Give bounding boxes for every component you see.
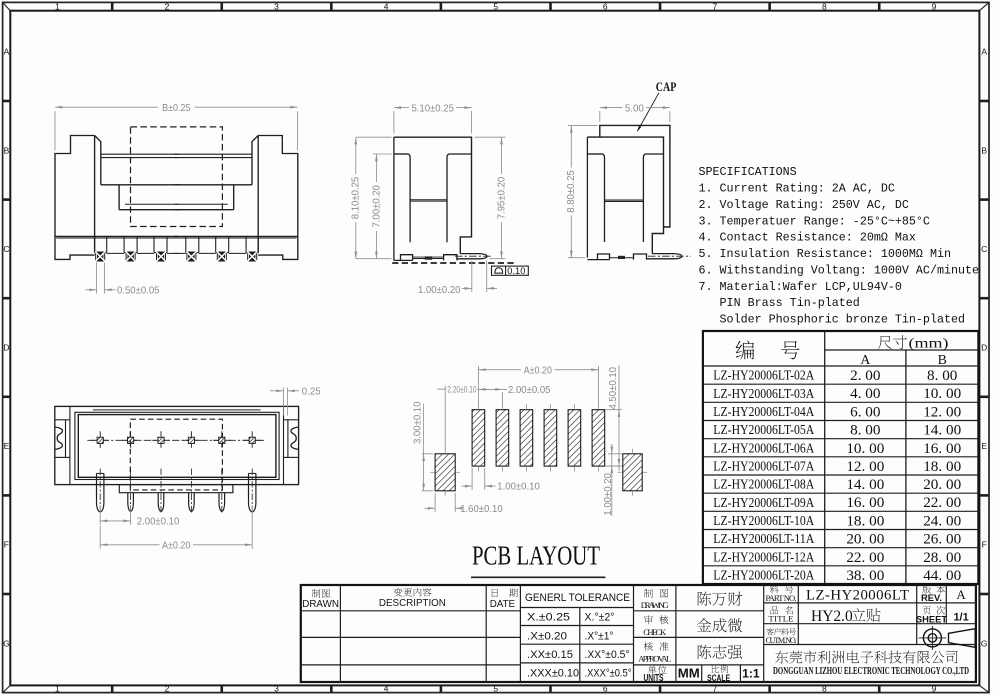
svg-text:18. 00: 18. 00 [923, 458, 961, 475]
svg-text:LZ-HY20006LT-12A: LZ-HY20006LT-12A [713, 549, 814, 564]
svg-text:B: B [4, 145, 10, 155]
svg-text:PART NO.: PART NO. [766, 593, 797, 603]
svg-text:0.10: 0.10 [507, 266, 525, 276]
svg-text:UNITS: UNITS [644, 673, 664, 684]
svg-text:7: 7 [713, 2, 718, 12]
svg-text:LZ-HY20006LT-11A: LZ-HY20006LT-11A [713, 531, 814, 546]
svg-text:.XX±0.15: .XX±0.15 [527, 649, 573, 661]
svg-text:0.25: 0.25 [302, 386, 321, 397]
svg-text:DRAWING: DRAWING [641, 600, 669, 610]
svg-text:1: 1 [55, 683, 60, 693]
svg-text:1/1: 1/1 [953, 612, 968, 624]
svg-text:LZ-HY20006LT-07A: LZ-HY20006LT-07A [713, 459, 814, 474]
svg-text:B±0.25: B±0.25 [162, 103, 190, 114]
svg-text:4: 4 [384, 683, 389, 693]
svg-text:DATE: DATE [490, 599, 516, 610]
svg-text:16. 00: 16. 00 [923, 440, 961, 457]
svg-text:E: E [4, 441, 10, 451]
svg-text:C: C [981, 244, 987, 254]
svg-text:REV.: REV. [921, 592, 942, 603]
svg-text:LZ-HY20006LT-08A: LZ-HY20006LT-08A [713, 477, 814, 492]
svg-text:7. Material:Wafer LCP,UL94V-0: 7. Material:Wafer LCP,UL94V-0 [699, 280, 902, 294]
svg-text:2. 00: 2. 00 [850, 367, 881, 384]
svg-text:GENERL TOLERANCE: GENERL TOLERANCE [525, 592, 630, 604]
svg-text:1.00±0.20: 1.00±0.20 [603, 473, 614, 516]
svg-text:2. Voltage Rating: 250V AC, DC: 2. Voltage Rating: 250V AC, DC [699, 198, 909, 212]
svg-text:Solder Phosphoric bronze Tin-p: Solder Phosphoric bronze Tin-plated [699, 313, 966, 327]
svg-text:DONGGUAN LIZHOU ELECTRONIC TEC: DONGGUAN LIZHOU ELECTRONIC TECHNOLOGY CO… [773, 666, 969, 677]
svg-text:.XX°±0.5°: .XX°±0.5° [585, 649, 630, 661]
svg-text:F: F [982, 540, 987, 550]
svg-text:4.50±0.10: 4.50±0.10 [608, 367, 619, 410]
svg-text:A±0.20: A±0.20 [162, 541, 190, 552]
svg-text:A: A [956, 587, 966, 602]
svg-text:G: G [3, 638, 10, 648]
svg-text:APPROVAL: APPROVAL [638, 653, 671, 663]
svg-text:2.20±0.10: 2.20±0.10 [447, 384, 476, 394]
svg-text:3: 3 [274, 683, 279, 693]
svg-text:14. 00: 14. 00 [923, 422, 961, 439]
svg-text:3. Temperatuer Range: -25°C~+8: 3. Temperatuer Range: -25°C~+85°C [699, 214, 930, 228]
svg-text:TITLE: TITLE [769, 614, 794, 624]
svg-text:8.80±0.25: 8.80±0.25 [566, 170, 577, 213]
svg-text:3: 3 [274, 2, 279, 12]
svg-text:HY2.0: HY2.0 [811, 608, 853, 625]
svg-text:X.°±2°: X.°±2° [585, 612, 615, 624]
svg-text:1. Current Rating: 2A AC, DC: 1. Current Rating: 2A AC, DC [699, 182, 895, 196]
svg-text:(mm): (mm) [909, 335, 949, 350]
svg-text:5.00: 5.00 [625, 103, 644, 114]
svg-text:LZ-HY20006LT-20A: LZ-HY20006LT-20A [713, 568, 814, 583]
svg-text:5: 5 [493, 683, 498, 693]
svg-text:SHEET: SHEET [916, 613, 948, 624]
svg-text:.X°±1°: .X°±1° [585, 630, 614, 642]
svg-text:10. 00: 10. 00 [846, 440, 884, 457]
svg-text:A: A [860, 352, 870, 367]
svg-text:3.00±0.10: 3.00±0.10 [413, 401, 424, 444]
svg-text:6. 00: 6. 00 [850, 403, 881, 420]
svg-text:8. 00: 8. 00 [927, 367, 958, 384]
svg-text:B: B [981, 145, 987, 155]
svg-text:LZ-HY20006LT-06A: LZ-HY20006LT-06A [713, 440, 814, 455]
svg-text:8: 8 [822, 2, 827, 12]
svg-text:44. 00: 44. 00 [923, 567, 961, 584]
svg-text:4. Contact Resistance: 20mΩ Ma: 4. Contact Resistance: 20mΩ Max [699, 231, 916, 245]
svg-text:2: 2 [165, 683, 170, 693]
svg-text:4. 00: 4. 00 [850, 385, 881, 402]
svg-text:2.00±0.10: 2.00±0.10 [137, 517, 180, 528]
svg-text:16. 00: 16. 00 [846, 494, 884, 511]
svg-text:0.50±0.05: 0.50±0.05 [117, 285, 160, 296]
svg-text:1.00±0.10: 1.00±0.10 [497, 482, 540, 493]
svg-text:CAP: CAP [656, 79, 677, 94]
svg-text:C: C [3, 244, 9, 254]
svg-text:LZ-HY20006LT-09A: LZ-HY20006LT-09A [713, 495, 814, 510]
svg-text:28. 00: 28. 00 [923, 549, 961, 566]
svg-text:D: D [981, 343, 987, 353]
svg-text:LZ-HY20006LT: LZ-HY20006LT [806, 588, 909, 604]
svg-text:DRAWN: DRAWN [302, 599, 339, 610]
svg-text:24. 00: 24. 00 [923, 512, 961, 529]
svg-text:20. 00: 20. 00 [923, 476, 961, 493]
svg-text:12. 00: 12. 00 [923, 403, 961, 420]
svg-text:5.10±0.25: 5.10±0.25 [411, 103, 454, 114]
svg-text:A±0.20: A±0.20 [524, 365, 552, 376]
svg-text:LZ-HY20006LT-03A: LZ-HY20006LT-03A [713, 386, 814, 401]
svg-text:7.95±0.20: 7.95±0.20 [496, 177, 507, 220]
svg-text:SPECIFICATIONS: SPECIFICATIONS [699, 165, 797, 179]
svg-text:.XXX±0.10: .XXX±0.10 [527, 668, 579, 680]
svg-text:.XXX°±0.5°: .XXX°±0.5° [585, 668, 632, 680]
svg-text:22. 00: 22. 00 [923, 494, 961, 511]
svg-text:38. 00: 38. 00 [846, 567, 884, 584]
svg-text:12. 00: 12. 00 [846, 458, 884, 475]
svg-text:8. 00: 8. 00 [850, 422, 881, 439]
svg-text:4: 4 [384, 2, 389, 12]
svg-text:26. 00: 26. 00 [923, 531, 961, 548]
svg-text:LZ-HY20006LT-02A: LZ-HY20006LT-02A [713, 368, 814, 383]
svg-text:5: 5 [493, 2, 498, 12]
svg-text:X.±0.25: X.±0.25 [527, 612, 570, 624]
svg-text:B: B [938, 352, 947, 367]
svg-text:2.00±0.05: 2.00±0.05 [508, 385, 551, 396]
svg-text:7: 7 [713, 683, 718, 693]
svg-text:22. 00: 22. 00 [846, 549, 884, 566]
svg-text:.X±0.20: .X±0.20 [527, 630, 567, 642]
svg-text:8.10±0.25: 8.10±0.25 [351, 177, 362, 220]
svg-text:8: 8 [822, 683, 827, 693]
svg-text:F: F [4, 540, 9, 550]
svg-text:14. 00: 14. 00 [846, 476, 884, 493]
svg-text:MM: MM [678, 666, 700, 681]
svg-text:6: 6 [603, 683, 608, 693]
svg-text:1.60±0.10: 1.60±0.10 [460, 504, 503, 515]
svg-text:A: A [981, 47, 987, 57]
svg-text:LZ-HY20006LT-04A: LZ-HY20006LT-04A [713, 404, 814, 419]
svg-text:DESCRIPTION: DESCRIPTION [379, 598, 446, 609]
svg-text:CUTM. NO.: CUTM. NO. [766, 636, 797, 645]
svg-text:E: E [981, 441, 987, 451]
svg-text:20. 00: 20. 00 [846, 531, 884, 548]
svg-text:G: G [981, 638, 988, 648]
svg-text:2: 2 [165, 2, 170, 12]
svg-text:9: 9 [932, 683, 937, 693]
svg-text:5. Insulation Resistance: 1000: 5. Insulation Resistance: 1000MΩ Min [699, 247, 952, 261]
svg-text:18. 00: 18. 00 [846, 512, 884, 529]
svg-text:1: 1 [55, 2, 60, 12]
svg-text:9: 9 [932, 2, 937, 12]
svg-text:PCB LAYOUT: PCB LAYOUT [472, 540, 600, 570]
svg-text:7.00±0.20: 7.00±0.20 [371, 185, 382, 228]
svg-text:LZ-HY20006LT-10A: LZ-HY20006LT-10A [713, 513, 814, 528]
svg-text:CHECK: CHECK [643, 627, 667, 637]
svg-text:6: 6 [603, 2, 608, 12]
svg-text:SCALE: SCALE [707, 673, 730, 684]
svg-text:1:1: 1:1 [742, 667, 760, 681]
svg-text:LZ-HY20006LT-05A: LZ-HY20006LT-05A [713, 422, 814, 437]
svg-text:1.00±0.20: 1.00±0.20 [418, 285, 461, 296]
svg-text:PIN Brass Tin-plated: PIN Brass Tin-plated [699, 296, 860, 310]
svg-text:6. Withstanding Voltang: 1000V: 6. Withstanding Voltang: 1000V AC/minute [699, 264, 980, 278]
svg-text:D: D [3, 343, 9, 353]
svg-text:A: A [4, 47, 10, 57]
svg-text:10. 00: 10. 00 [923, 385, 961, 402]
